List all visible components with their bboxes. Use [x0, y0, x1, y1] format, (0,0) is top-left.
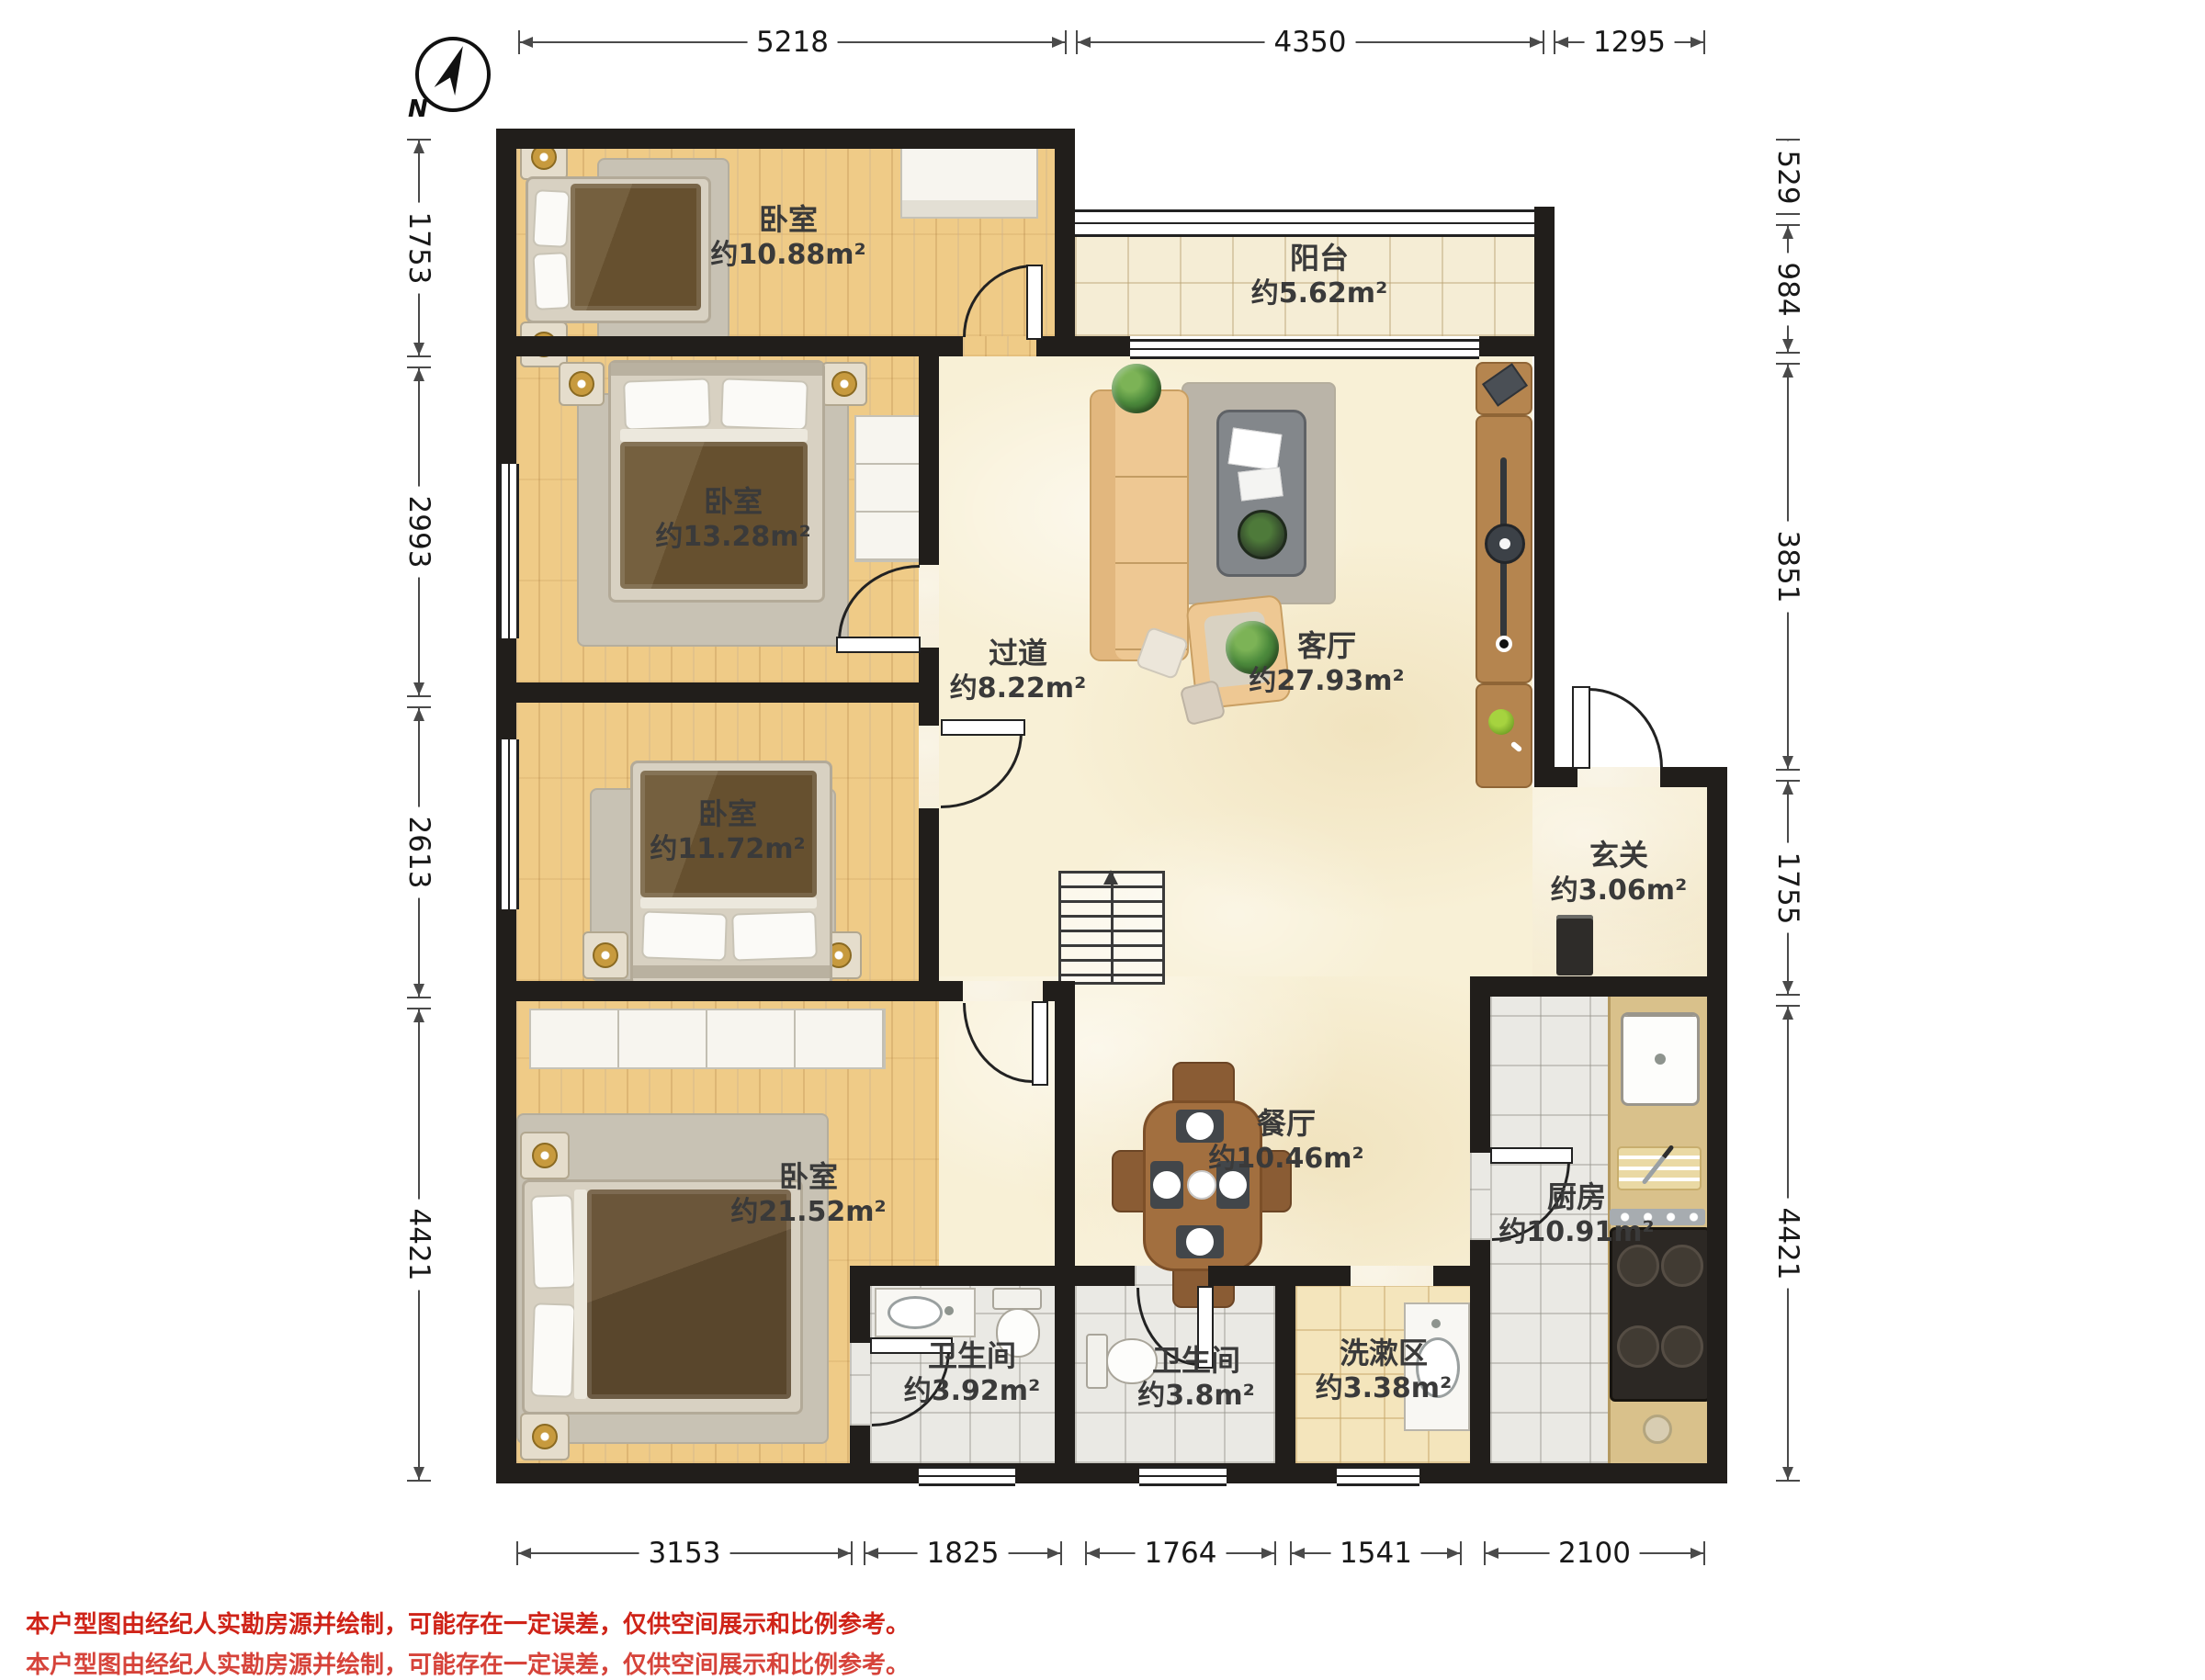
- bath1-window: [919, 1466, 1015, 1486]
- bedroom2-nightstand: [821, 362, 867, 406]
- floor-patch: [1351, 1266, 1433, 1286]
- tv-icon: [1482, 363, 1528, 407]
- balcony-window: [1075, 209, 1534, 237]
- lamp-icon: [532, 1143, 558, 1168]
- room-name: 卫生间: [904, 1337, 1040, 1374]
- paper: [1238, 467, 1283, 501]
- disclaimer-text: 本户型图由经纪人实勘房源并绘制，可能存在一定误差，仅供空间展示和比例参考。: [26, 1606, 910, 1640]
- wall: [496, 336, 963, 356]
- sheet-fold: [620, 429, 808, 442]
- dimension-right-5: 4421: [1787, 1006, 1789, 1481]
- entry-door-leaf: [1572, 686, 1590, 769]
- blanket: [571, 184, 701, 310]
- floor-patch: [963, 981, 1043, 1001]
- arrow-icon: [1690, 37, 1703, 48]
- wall: [919, 356, 939, 565]
- bedroom3-nightstand: [582, 931, 628, 979]
- arrow-icon: [1782, 1467, 1793, 1480]
- wall: [1534, 356, 1555, 787]
- arrow-icon: [865, 1548, 878, 1559]
- dimension-left-2: 2993: [418, 367, 420, 696]
- room-name: 卧室: [730, 1158, 886, 1195]
- floor-patch: [1470, 1153, 1490, 1240]
- dimension-value: 2993: [402, 487, 435, 578]
- bedroom4-door-leaf: [1032, 1001, 1048, 1086]
- floor-patch: [850, 1343, 870, 1426]
- pillow: [641, 910, 728, 961]
- arrow-icon: [413, 343, 424, 355]
- wall: [1470, 1240, 1490, 1463]
- dimension-value: 5218: [747, 26, 838, 59]
- wall: [850, 1426, 870, 1463]
- arrow-icon: [1087, 1548, 1100, 1559]
- wall: [1479, 336, 1555, 356]
- dimension-value: 3851: [1771, 522, 1804, 613]
- washing-window: [1337, 1466, 1419, 1486]
- room-area: 约3.06m²: [1551, 874, 1687, 908]
- room-area: 约8.22m²: [950, 671, 1086, 706]
- dimension-value: 1755: [1771, 842, 1804, 933]
- room-area: 约3.38m²: [1316, 1371, 1452, 1406]
- room-label-hallway: 过道 约8.22m²: [950, 635, 1086, 706]
- arrow-icon: [1782, 981, 1793, 994]
- wall: [496, 1463, 1727, 1483]
- tv-console-bottom: [1476, 683, 1532, 788]
- pillow: [731, 910, 818, 961]
- tv-console-top: [1476, 362, 1532, 415]
- plant-dot-icon: [1488, 709, 1514, 735]
- wall: [919, 808, 939, 981]
- room-area: 约13.28m²: [655, 520, 810, 555]
- room-name: 餐厅: [1208, 1105, 1363, 1142]
- bedroom4-nightstand: [520, 1132, 570, 1179]
- pillow: [720, 378, 808, 430]
- bedroom1-desk: [900, 138, 1038, 219]
- room-area: 约27.93m²: [1249, 664, 1404, 699]
- pillow: [530, 1194, 576, 1290]
- room-name: 客厅: [1249, 627, 1404, 664]
- room-name: 玄关: [1551, 837, 1687, 874]
- dimension-left-3: 2613: [418, 707, 420, 998]
- plant-icon: [1112, 364, 1161, 413]
- room-name: 卧室: [655, 483, 810, 520]
- sink-bowl: [888, 1296, 943, 1329]
- dimension-top-3: 1295: [1555, 41, 1704, 43]
- speaker-dot: [1499, 538, 1510, 549]
- bedroom3-bed: [630, 761, 832, 987]
- room-area: 约3.8m²: [1137, 1379, 1255, 1414]
- room-label-bedroom3: 卧室 约11.72m²: [650, 795, 805, 867]
- bedroom3-window: [499, 739, 519, 909]
- wall: [850, 1266, 1075, 1286]
- wall: [1275, 1266, 1295, 1463]
- arrow-icon: [413, 368, 424, 381]
- kitchen-drain: [1643, 1415, 1672, 1444]
- bedroom2-bed: [608, 360, 825, 603]
- disclaimer-text-clipped: 本户型图由经纪人实勘房源并绘制，可能存在一定误差，仅供空间展示和比例参考。: [26, 1646, 910, 1680]
- kitchen-door-leaf: [1490, 1147, 1573, 1164]
- arrow-icon: [838, 1548, 851, 1559]
- wall: [1707, 767, 1727, 1483]
- dimension-right-2: 984: [1787, 225, 1789, 353]
- pillow: [530, 1302, 576, 1398]
- room-area: 约10.88m²: [710, 238, 865, 273]
- arrow-icon: [1782, 1007, 1793, 1020]
- room-label-bath2: 卫生间 约3.8m²: [1137, 1342, 1255, 1414]
- arrow-icon: [1782, 782, 1793, 795]
- dimension-bottom-5: 2100: [1485, 1552, 1704, 1554]
- wall: [1555, 767, 1577, 787]
- arrow-icon: [1782, 226, 1793, 239]
- bedroom1-door-leaf: [1026, 265, 1043, 340]
- dimension-value: 2100: [1549, 1537, 1640, 1570]
- room-area: 约3.92m²: [904, 1374, 1040, 1409]
- wall: [1075, 336, 1130, 356]
- room-area: 约5.62m²: [1251, 276, 1387, 311]
- toilet-tank: [1086, 1334, 1108, 1389]
- kitchen-stove: [1610, 1227, 1711, 1402]
- room-label-balcony: 阳台 约5.62m²: [1251, 240, 1387, 311]
- arrow-icon: [518, 1548, 531, 1559]
- pillow: [623, 378, 711, 430]
- lamp-icon: [831, 371, 857, 397]
- bath2-window: [1139, 1466, 1227, 1486]
- tv-console: [1476, 415, 1532, 683]
- dimension-right-3: 3851: [1787, 364, 1789, 770]
- lamp-icon: [593, 942, 618, 968]
- dimension-right-4: 1755: [1787, 781, 1789, 995]
- wall: [496, 981, 963, 1001]
- dimension-value: 1825: [918, 1537, 1009, 1570]
- arrow-icon: [1292, 1548, 1305, 1559]
- bedroom2-window: [499, 464, 519, 638]
- table-plant-icon: [1238, 510, 1287, 559]
- room-name: 阳台: [1251, 240, 1387, 276]
- speaker-circle: [1485, 524, 1525, 564]
- room-label-dining: 餐厅 约10.46m²: [1208, 1105, 1363, 1177]
- dimension-left-1: 1753: [418, 140, 420, 356]
- floor-patch: [919, 565, 939, 648]
- arrow-icon: [1555, 37, 1568, 48]
- lamp-icon: [569, 371, 594, 397]
- bedroom2-wardrobe: [854, 415, 922, 562]
- dimension-top-2: 4350: [1077, 41, 1543, 43]
- placemat: [1176, 1225, 1224, 1258]
- room-label-kitchen: 厨房 约10.91m²: [1498, 1178, 1654, 1250]
- room-name: 洗漱区: [1316, 1335, 1452, 1371]
- lamp-icon: [532, 1424, 558, 1449]
- dimension-value: 4421: [1771, 1198, 1804, 1289]
- bedroom2-nightstand: [559, 362, 605, 406]
- arrow-icon: [1052, 37, 1065, 48]
- dimension-value: 3153: [639, 1537, 730, 1570]
- arrow-icon: [413, 141, 424, 153]
- kitchen-sink: [1621, 1012, 1700, 1106]
- paper: [1227, 427, 1282, 470]
- dimension-value: 4421: [402, 1200, 435, 1291]
- room-label-bedroom4: 卧室 约21.52m²: [730, 1158, 886, 1230]
- room-area: 约10.91m²: [1498, 1215, 1654, 1250]
- floor-patch: [919, 726, 939, 808]
- arrow-icon: [413, 984, 424, 997]
- bedroom2-door-leaf: [836, 637, 921, 653]
- wall: [919, 648, 939, 726]
- arrow-icon: [1078, 37, 1091, 48]
- dimension-value: 1295: [1584, 26, 1675, 59]
- burner: [1617, 1245, 1659, 1287]
- floor-patch: [963, 336, 1036, 356]
- arrow-icon: [413, 1009, 424, 1022]
- arrow-icon: [413, 682, 424, 695]
- dimension-value: 529: [1771, 141, 1804, 213]
- compass: N: [415, 37, 498, 138]
- burner: [1661, 1325, 1703, 1368]
- arrow-icon: [1047, 1548, 1060, 1559]
- coffee-table: [1216, 410, 1306, 577]
- faucet: [1431, 1319, 1441, 1328]
- arrow-icon: [1530, 37, 1543, 48]
- wall: [496, 682, 919, 703]
- dimension-value: 2613: [402, 807, 435, 898]
- wall: [496, 129, 1075, 149]
- wall: [1470, 976, 1727, 997]
- placemat: [1150, 1161, 1183, 1209]
- wall: [850, 1266, 870, 1343]
- room-name: 过道: [950, 635, 1086, 671]
- balcony-sill-window: [1130, 339, 1479, 359]
- wall: [1043, 981, 1075, 1001]
- headboard: [633, 965, 830, 978]
- dimension-value: 4350: [1265, 26, 1356, 59]
- dimension-bottom-3: 1764: [1086, 1552, 1275, 1554]
- white-mark: [1510, 741, 1523, 753]
- room-label-washing: 洗漱区 约3.38m²: [1316, 1335, 1452, 1406]
- bedroom4-wardrobe: [529, 1009, 886, 1069]
- wall: [1470, 976, 1490, 1153]
- room-label-bedroom2: 卧室 约13.28m²: [655, 483, 810, 555]
- dimension-bottom-1: 3153: [517, 1552, 852, 1554]
- plate: [1186, 1228, 1214, 1256]
- wall: [1295, 1266, 1351, 1286]
- headboard: [611, 363, 822, 376]
- plate: [1153, 1171, 1181, 1199]
- entry-sho e-cabinet: [1556, 915, 1593, 975]
- pillow: [532, 252, 570, 310]
- compass-north-label: N: [408, 96, 428, 123]
- room-label-bedroom1: 卧室 约10.88m²: [710, 201, 865, 273]
- room-area: 约11.72m²: [650, 832, 805, 867]
- entry-door-arc: [1589, 688, 1663, 768]
- dimension-top-1: 5218: [519, 41, 1066, 43]
- small-dot: [1496, 636, 1512, 652]
- burner: [1661, 1245, 1703, 1287]
- wall: [1055, 1001, 1075, 1463]
- room-name: 卫生间: [1137, 1342, 1255, 1379]
- room-label-bath1: 卫生间 约3.92m²: [904, 1337, 1040, 1409]
- arrow-icon: [413, 1467, 424, 1480]
- dimension-left-4: 4421: [418, 1009, 420, 1481]
- dimension-value: 1541: [1330, 1537, 1421, 1570]
- room-area: 约10.46m²: [1208, 1142, 1363, 1177]
- floor-patch: [1577, 767, 1660, 787]
- dimension-value: 984: [1771, 253, 1804, 325]
- faucet: [1655, 1054, 1666, 1065]
- room-name: 卧室: [650, 795, 805, 832]
- arrow-icon: [1447, 1548, 1460, 1559]
- room-name: 卧室: [710, 201, 865, 238]
- arrow-icon: [1782, 756, 1793, 769]
- arrow-icon: [1486, 1548, 1498, 1559]
- room-area: 约21.52m²: [730, 1195, 886, 1230]
- bedroom1-bed: [526, 176, 711, 323]
- sheet-fold: [640, 897, 817, 908]
- dimension-value: 1753: [402, 203, 435, 294]
- bath1-sink: [875, 1288, 976, 1337]
- arrow-icon: [1261, 1548, 1274, 1559]
- staircase: [1058, 871, 1165, 985]
- floor-plan: 卧室 约10.88m² 阳台 约5.62m² 卧室 约13.28m² 过道 约8…: [0, 0, 2205, 1653]
- room-label-entry: 玄关 约3.06m²: [1551, 837, 1687, 908]
- dimension-right-1: 529: [1787, 140, 1789, 214]
- pillow: [532, 189, 570, 248]
- dimension-bottom-4: 1541: [1291, 1552, 1461, 1554]
- bedroom3-door-leaf: [941, 719, 1025, 736]
- arrow-icon: [1782, 339, 1793, 352]
- toilet-tank: [992, 1288, 1042, 1310]
- bedroom4-nightstand: [520, 1413, 570, 1460]
- wall: [1433, 1266, 1470, 1286]
- burner: [1617, 1325, 1659, 1368]
- arrow-icon: [1782, 365, 1793, 378]
- sofa: [1090, 389, 1189, 661]
- sheet-fold: [574, 1190, 587, 1399]
- dimension-value: 1764: [1136, 1537, 1227, 1570]
- arrow-icon: [1690, 1548, 1703, 1559]
- dimension-bottom-2: 1825: [865, 1552, 1061, 1554]
- arrow-icon: [413, 708, 424, 721]
- room-label-living: 客厅 约27.93m²: [1249, 627, 1404, 699]
- room-name: 厨房: [1498, 1178, 1654, 1215]
- wall: [1055, 129, 1075, 356]
- faucet: [944, 1306, 954, 1315]
- wall: [1075, 1266, 1135, 1286]
- arrow-icon: [520, 37, 533, 48]
